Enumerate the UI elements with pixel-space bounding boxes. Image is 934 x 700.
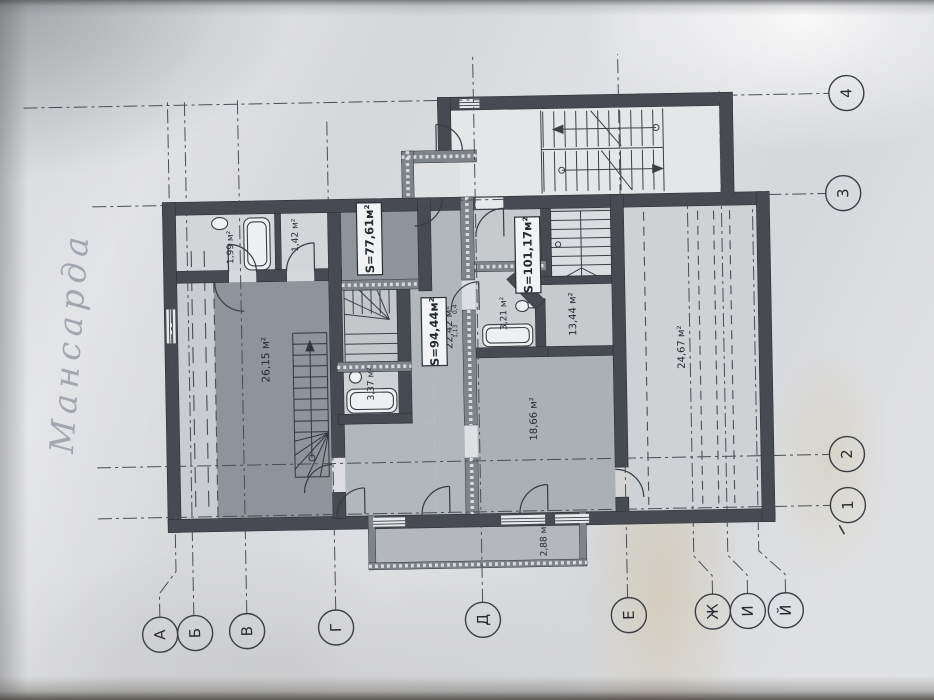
area-hall-left: 26,15 м²: [260, 337, 273, 383]
axis-circle-g: Г: [318, 610, 354, 646]
axis-label-2: 2: [838, 449, 856, 459]
axis-label-3: 3: [834, 188, 852, 198]
area-balcony: 2,88 м²: [539, 523, 550, 557]
axis-circle-a: А: [142, 617, 178, 653]
axis-label-a: А: [151, 629, 169, 640]
area-room-lower-middle: 18,66 м²: [528, 397, 540, 441]
bathtub-left: [244, 218, 271, 270]
sink-middle: [349, 371, 361, 383]
axis-label-v: В: [238, 626, 256, 637]
axis-label-1: 1: [839, 500, 857, 510]
apartment-right-text: S=101,17м²: [520, 216, 535, 293]
axis-circle-zh: Ж: [695, 594, 731, 630]
axis-circle-i: И: [730, 593, 766, 629]
dim-mark-2: 1,13: [452, 324, 459, 338]
dim-mark-1: 0,4: [452, 304, 459, 314]
area-bath-middle: 3,37 м²: [366, 367, 377, 401]
apartment-middle-text: S=94,44м²: [427, 297, 442, 366]
sink-left: [212, 217, 228, 229]
axis-label-d: Д: [474, 614, 492, 626]
apartment-left-text: S=77,61м²: [362, 204, 377, 273]
axis-label-b: Б: [186, 628, 204, 639]
axis-circle-d: Д: [465, 602, 501, 638]
area-room-large-right: 24,67 м²: [676, 325, 688, 369]
axis-circle-3: 3: [825, 175, 861, 211]
axis-circle-v: В: [229, 613, 265, 649]
axis-label-y: Й: [776, 604, 795, 616]
drawing-tilt-wrapper: А Б В Г Д Е Ж И Й 4 3 2 1 26,15 м² 1,99 …: [0, 0, 934, 700]
floor-plan-drawing: А Б В Г Д Е Ж И Й 4 3 2 1 26,15 м² 1,99 …: [0, 0, 934, 700]
axis-circle-e: Е: [611, 597, 647, 633]
axis-circle-1: 1: [830, 487, 866, 523]
area-room-small-right: 13,44 м²: [567, 292, 579, 336]
apartment-label-right: S=101,17м²: [515, 216, 541, 293]
area-wc-left: 1,42 м²: [291, 218, 302, 252]
axis-circle-2: 2: [829, 436, 865, 472]
area-bath-left: 1,99 м²: [226, 230, 237, 264]
axis-circle-b: Б: [177, 615, 213, 651]
apartment-label-left: S=77,61м²: [356, 203, 382, 275]
apartment-label-middle: S=94,44м²: [421, 297, 447, 366]
axis-label-i: И: [739, 605, 757, 617]
axis-label-e: Е: [620, 610, 638, 620]
axis-label-zh: Ж: [704, 603, 722, 619]
photo-of-floor-plan-document: А Б В Г Д Е Ж И Й 4 3 2 1 26,15 м² 1,99 …: [0, 0, 934, 700]
axis-circle-4: 4: [829, 75, 865, 111]
axis-label-4: 4: [837, 88, 855, 98]
area-bath-right: 3,21 м²: [499, 296, 510, 330]
axis-circle-y: Й: [768, 592, 804, 628]
axis-label-g: Г: [327, 623, 345, 632]
